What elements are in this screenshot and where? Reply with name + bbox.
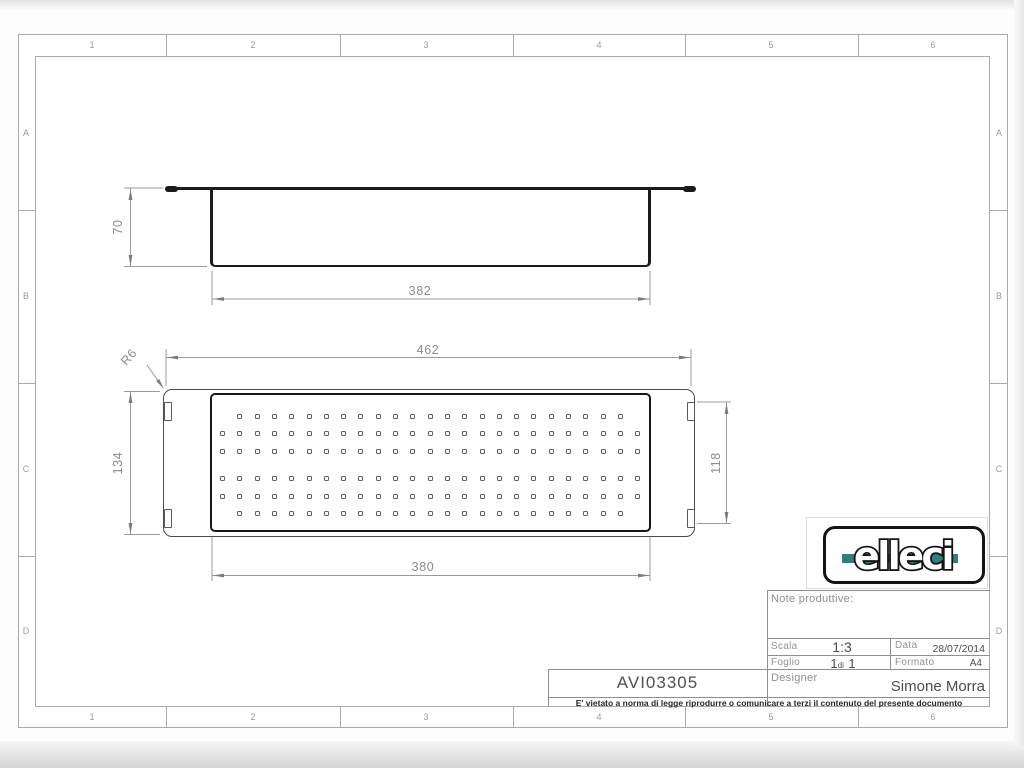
- perforation-hole: [566, 431, 571, 436]
- perforation-hole: [514, 414, 519, 419]
- grid-tick: [858, 706, 859, 728]
- perforation-hole: [497, 449, 502, 454]
- grid-tick: [166, 34, 167, 56]
- grid-tick: [990, 383, 1008, 384]
- disclaimer-text: E' vietato a norma di legge riprodurre o…: [548, 698, 990, 708]
- perforation-hole: [601, 511, 606, 516]
- zone-label-row: A: [19, 127, 33, 139]
- perforation-hole: [255, 476, 260, 481]
- perforation-hole: [445, 431, 450, 436]
- perforation-hole: [237, 414, 242, 419]
- top-view-clip-tab-right-upper: [687, 402, 695, 421]
- perforation-hole: [462, 431, 467, 436]
- grid-tick: [166, 706, 167, 728]
- perforation-hole: [566, 476, 571, 481]
- titleblock-line: [767, 655, 990, 656]
- perforation-hole: [255, 494, 260, 499]
- perforation-hole: [566, 449, 571, 454]
- perforation-hole: [549, 494, 554, 499]
- perforation-hole: [272, 449, 277, 454]
- perforation-hole: [601, 414, 606, 419]
- top-view-clip-tab-left-lower: [164, 509, 172, 528]
- perforation-hole: [462, 494, 467, 499]
- zone-label-col: 5: [764, 711, 778, 723]
- perforation-hole: [549, 449, 554, 454]
- grid-tick: [340, 34, 341, 56]
- perforation-hole: [410, 511, 415, 516]
- perforation-hole: [635, 431, 640, 436]
- zone-label-row: A: [992, 127, 1006, 139]
- zone-label-col: 2: [246, 39, 260, 51]
- perforation-hole: [618, 431, 623, 436]
- titleblock-line: [767, 638, 990, 639]
- zone-label-col: 1: [85, 711, 99, 723]
- perforation-hole: [601, 431, 606, 436]
- zone-label-row: D: [992, 625, 1006, 637]
- perforation-hole: [428, 494, 433, 499]
- perforation-hole: [445, 414, 450, 419]
- perforation-hole: [358, 414, 363, 419]
- elleci-logo-art: elleci: [826, 529, 981, 580]
- perforation-hole: [324, 511, 329, 516]
- perforation-hole: [324, 494, 329, 499]
- grid-tick: [340, 706, 341, 728]
- perforation-hole: [289, 494, 294, 499]
- perforation-hole: [341, 476, 346, 481]
- titleblock-line: [767, 590, 990, 591]
- perforation-hole: [618, 449, 623, 454]
- perforation-hole: [341, 494, 346, 499]
- perforation-hole: [549, 414, 554, 419]
- perforation-hole: [272, 494, 277, 499]
- grid-tick: [18, 383, 35, 384]
- perforation-hole: [445, 494, 450, 499]
- zone-label-col: 3: [419, 711, 433, 723]
- zone-label-col: 4: [592, 39, 606, 51]
- scan-edge-top: [0, 0, 1024, 9]
- perforation-hole: [255, 431, 260, 436]
- perforation-hole: [307, 414, 312, 419]
- perforation-hole: [237, 511, 242, 516]
- perforation-hole: [341, 414, 346, 419]
- note-produttive-label: Note produttive:: [771, 593, 853, 605]
- perforation-hole: [358, 431, 363, 436]
- titleblock-line: [767, 590, 768, 707]
- grid-tick: [18, 210, 35, 211]
- scala-value: 1:3: [810, 639, 874, 655]
- grid-tick: [990, 210, 1008, 211]
- perforation-hole: [514, 476, 519, 481]
- grid-tick: [18, 556, 35, 557]
- top-view-clip-tab-left-upper: [164, 402, 172, 421]
- perforation-hole: [358, 476, 363, 481]
- titleblock-line: [548, 669, 990, 670]
- side-view-hook-left: [165, 186, 178, 193]
- perforation-hole: [272, 414, 277, 419]
- perforation-hole: [307, 476, 312, 481]
- dim-top-outer-width: 462: [403, 343, 453, 357]
- perforation-hole: [445, 511, 450, 516]
- perforation-hole: [289, 414, 294, 419]
- perforation-hole: [583, 494, 588, 499]
- data-value: 28/07/2014: [890, 643, 985, 655]
- perforation-hole: [289, 431, 294, 436]
- formato-label: Formato: [895, 657, 934, 668]
- perforation-hole: [428, 511, 433, 516]
- zone-label-row: C: [19, 463, 33, 475]
- grid-tick: [513, 706, 514, 728]
- top-view-clip-tab-right-lower: [687, 509, 695, 528]
- perforation-hole: [601, 476, 606, 481]
- designer-value: Simone Morra: [820, 678, 985, 695]
- grid-tick: [858, 34, 859, 56]
- side-view-tray-body: [210, 189, 651, 267]
- dim-side-width: 382: [395, 284, 445, 298]
- perforation-hole: [618, 511, 623, 516]
- perforation-hole: [601, 449, 606, 454]
- dim-top-inner-height: 118: [709, 438, 723, 488]
- perforation-hole: [237, 431, 242, 436]
- perforation-hole: [566, 511, 571, 516]
- zone-label-row: C: [992, 463, 1006, 475]
- perforation-hole: [376, 511, 381, 516]
- perforation-hole: [255, 414, 260, 419]
- zone-label-col: 3: [419, 39, 433, 51]
- perforation-hole: [480, 431, 485, 436]
- perforation-hole: [462, 511, 467, 516]
- scan-edge-bottom: [0, 741, 1024, 768]
- perforation-hole: [393, 414, 398, 419]
- perforation-hole: [618, 476, 623, 481]
- perforation-hole: [549, 511, 554, 516]
- perforation-hole: [410, 431, 415, 436]
- perforation-hole: [583, 431, 588, 436]
- perforation-hole: [393, 511, 398, 516]
- perforation-hole: [445, 449, 450, 454]
- perforation-hole: [376, 494, 381, 499]
- grid-tick: [685, 34, 686, 56]
- perforation-hole: [566, 414, 571, 419]
- perforation-hole: [497, 511, 502, 516]
- perforation-hole: [618, 494, 623, 499]
- perforation-hole: [428, 449, 433, 454]
- grid-tick: [685, 706, 686, 728]
- perforation-hole: [272, 431, 277, 436]
- perforation-hole: [289, 476, 294, 481]
- perforation-hole: [393, 449, 398, 454]
- perforation-hole: [393, 494, 398, 499]
- perforation-hole: [445, 476, 450, 481]
- designer-label: Designer: [771, 672, 817, 684]
- perforation-hole: [635, 494, 640, 499]
- perforation-hole: [289, 449, 294, 454]
- perforation-hole: [531, 414, 536, 419]
- perforation-hole: [480, 476, 485, 481]
- perforation-hole: [376, 449, 381, 454]
- perforation-hole: [358, 494, 363, 499]
- perforation-hole: [497, 431, 502, 436]
- zone-label-col: 6: [926, 711, 940, 723]
- perforation-hole: [393, 431, 398, 436]
- dim-top-outer-height: 134: [111, 438, 125, 488]
- perforation-hole: [324, 476, 329, 481]
- dim-top-inner-width: 380: [398, 560, 448, 574]
- perforation-hole: [307, 431, 312, 436]
- perforation-hole: [376, 476, 381, 481]
- foglio-num1: 1: [830, 656, 837, 671]
- perforation-hole: [531, 494, 536, 499]
- perforation-hole: [531, 476, 536, 481]
- perforation-hole: [410, 494, 415, 499]
- perforation-hole: [237, 476, 242, 481]
- grid-tick: [990, 556, 1008, 557]
- perforation-hole: [531, 431, 536, 436]
- zone-label-col: 5: [764, 39, 778, 51]
- perforation-hole: [307, 449, 312, 454]
- foglio-di: di: [838, 661, 844, 670]
- elleci-logo: elleci: [823, 526, 985, 584]
- perforation-hole: [220, 494, 225, 499]
- zone-label-row: B: [19, 290, 33, 302]
- perforation-hole: [497, 414, 502, 419]
- part-number: AVI03305: [548, 673, 767, 693]
- perforation-hole: [480, 511, 485, 516]
- zone-label-col: 2: [246, 711, 260, 723]
- zone-label-row: D: [19, 625, 33, 637]
- scan-edge-right: [1014, 0, 1024, 745]
- perforation-hole: [410, 414, 415, 419]
- perforation-hole: [324, 431, 329, 436]
- perforation-hole: [462, 449, 467, 454]
- perforation-hole: [272, 476, 277, 481]
- perforation-hole: [462, 476, 467, 481]
- perforation-hole: [393, 476, 398, 481]
- scala-label: Scala: [771, 641, 798, 652]
- perforation-hole: [497, 494, 502, 499]
- perforation-hole: [514, 511, 519, 516]
- side-view-hook-right: [683, 186, 696, 193]
- perforation-hole: [531, 511, 536, 516]
- perforation-hole: [341, 449, 346, 454]
- perforation-hole: [566, 494, 571, 499]
- perforation-hole: [220, 431, 225, 436]
- perforation-hole: [618, 414, 623, 419]
- perforation-hole: [480, 494, 485, 499]
- perforation-hole: [635, 449, 640, 454]
- perforation-hole: [307, 511, 312, 516]
- perforation-hole: [601, 494, 606, 499]
- perforation-hole: [341, 431, 346, 436]
- perforation-hole: [324, 449, 329, 454]
- drawing-sheet: 70 382 462 R6 134 118 380 elleci Note pr…: [0, 0, 1024, 768]
- foglio-value: 1di 1: [812, 655, 874, 673]
- perforation-hole: [376, 431, 381, 436]
- perforation-hole: [237, 449, 242, 454]
- perforation-hole: [272, 511, 277, 516]
- perforation-hole: [583, 414, 588, 419]
- perforation-hole: [428, 414, 433, 419]
- perforation-hole: [220, 449, 225, 454]
- perforation-hole: [514, 449, 519, 454]
- perforation-hole: [289, 511, 294, 516]
- perforation-hole: [531, 449, 536, 454]
- perforation-hole: [428, 476, 433, 481]
- zone-label-col: 1: [85, 39, 99, 51]
- perforation-hole: [358, 511, 363, 516]
- perforation-hole: [583, 476, 588, 481]
- perforation-hole: [583, 449, 588, 454]
- perforation-hole: [497, 476, 502, 481]
- foglio-label: Foglio: [771, 657, 800, 668]
- drawing-frame: [35, 56, 990, 707]
- perforation-hole: [514, 494, 519, 499]
- perforation-hole: [514, 431, 519, 436]
- perforation-hole: [410, 476, 415, 481]
- perforation-hole: [410, 449, 415, 454]
- perforation-hole: [220, 476, 225, 481]
- dim-side-height: 70: [111, 202, 125, 252]
- perforation-hole: [428, 431, 433, 436]
- perforation-hole: [480, 449, 485, 454]
- perforation-hole: [462, 414, 467, 419]
- perforation-hole: [635, 476, 640, 481]
- perforation-hole: [480, 414, 485, 419]
- perforation-hole: [583, 511, 588, 516]
- perforation-hole: [341, 511, 346, 516]
- perforation-hole: [549, 431, 554, 436]
- zone-label-row: B: [992, 290, 1006, 302]
- perforation-hole: [358, 449, 363, 454]
- zone-label-col: 6: [926, 39, 940, 51]
- foglio-num2: 1: [848, 656, 855, 671]
- zone-label-col: 4: [592, 711, 606, 723]
- perforation-hole: [307, 494, 312, 499]
- perforation-hole: [255, 511, 260, 516]
- perforation-hole: [237, 494, 242, 499]
- formato-value: A4: [930, 658, 982, 669]
- perforation-hole: [324, 414, 329, 419]
- perforation-hole: [255, 449, 260, 454]
- grid-tick: [513, 34, 514, 56]
- logo-wordmark: elleci: [854, 534, 952, 578]
- perforation-hole: [376, 414, 381, 419]
- perforation-hole: [549, 476, 554, 481]
